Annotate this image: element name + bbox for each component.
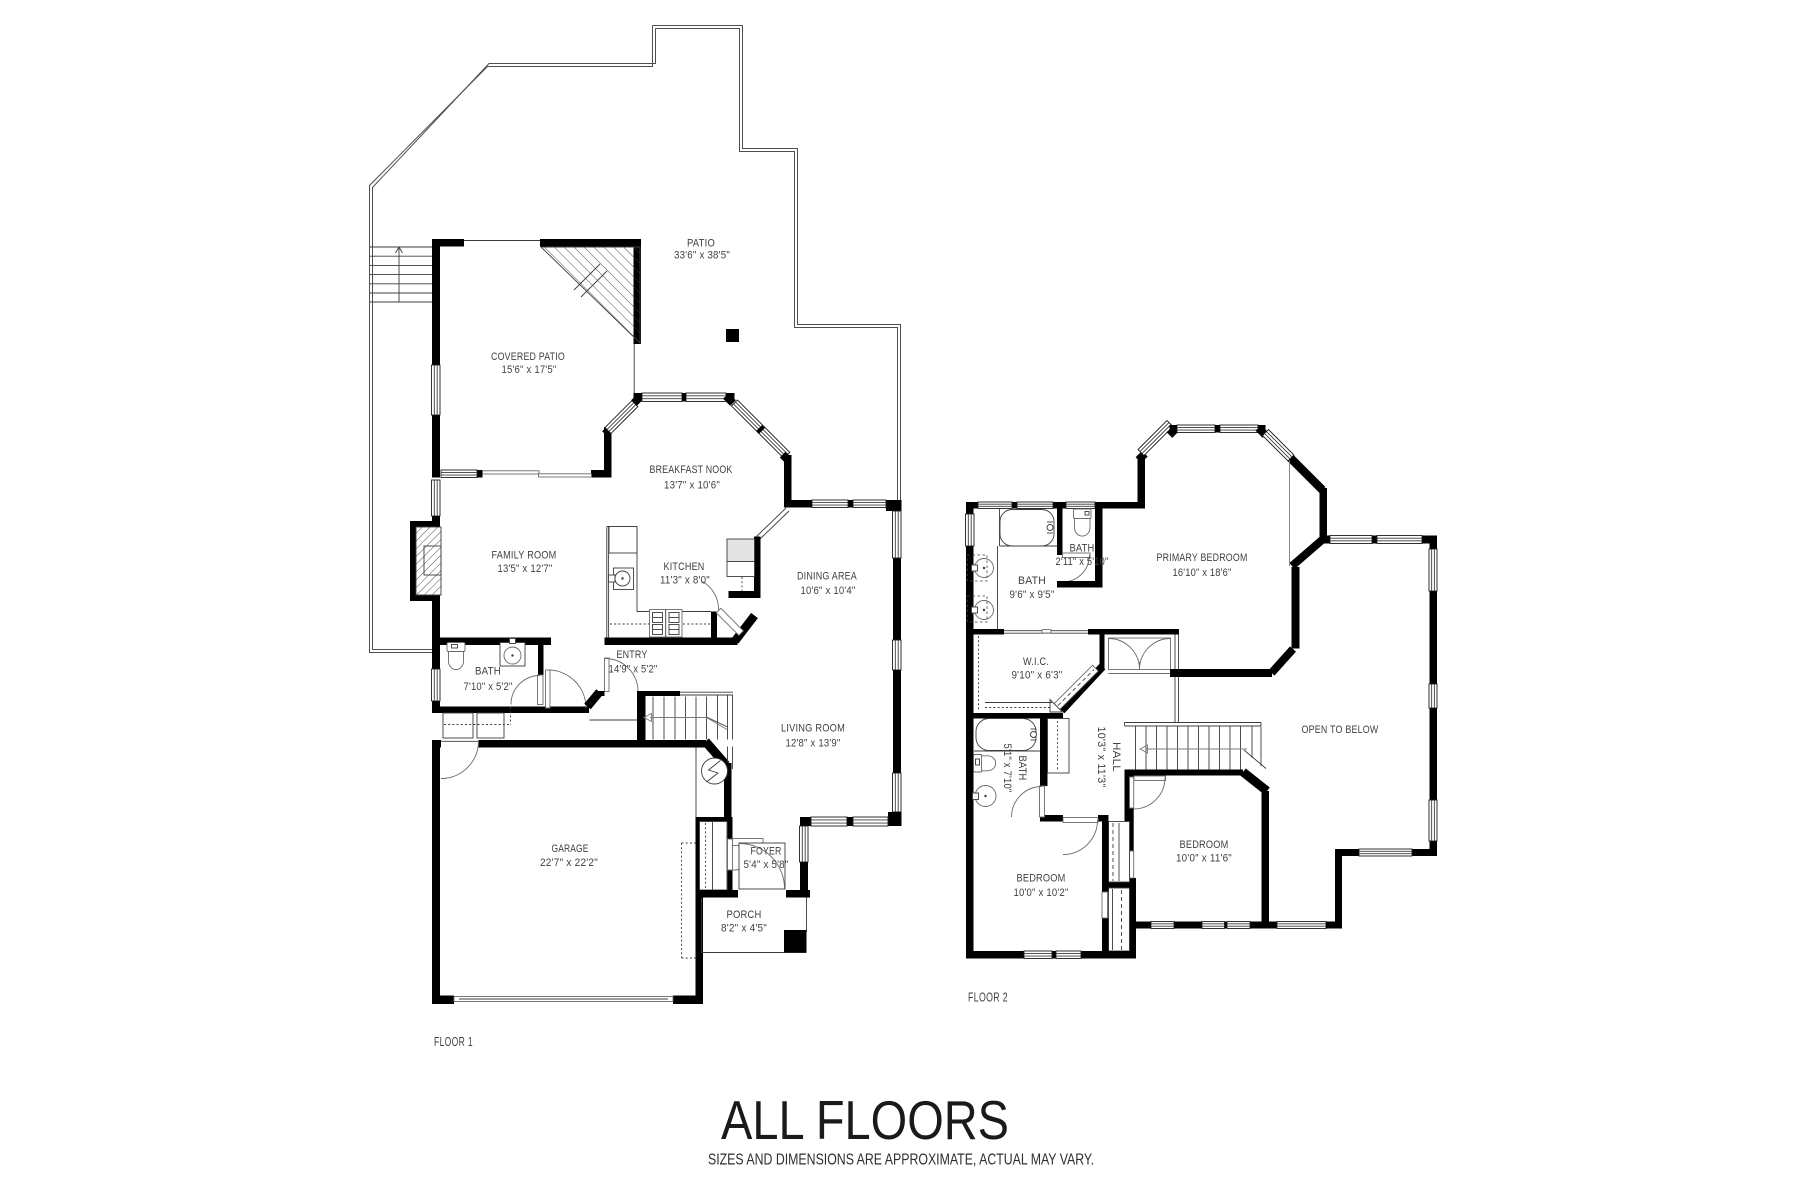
svg-text:2'11" x 5'10": 2'11" x 5'10": [1056, 556, 1109, 568]
svg-text:PORCH: PORCH: [727, 909, 762, 921]
svg-text:ENTRY: ENTRY: [617, 649, 648, 661]
svg-text:8'2" x 4'5": 8'2" x 4'5": [721, 923, 767, 935]
svg-text:ALL FLOORS: ALL FLOORS: [721, 1089, 1009, 1151]
svg-text:13'5" x 12'7": 13'5" x 12'7": [498, 563, 553, 575]
svg-text:9'6" x 9'5": 9'6" x 9'5": [1010, 589, 1055, 601]
svg-text:GARAGE: GARAGE: [552, 843, 589, 855]
svg-text:BATH: BATH: [475, 666, 501, 678]
svg-text:33'6" x 38'5": 33'6" x 38'5": [674, 250, 730, 262]
svg-text:BATH: BATH: [1016, 756, 1028, 781]
svg-text:PRIMARY BEDROOM: PRIMARY BEDROOM: [1157, 552, 1248, 564]
svg-text:FLOOR 1: FLOOR 1: [434, 1035, 473, 1049]
svg-text:BREAKFAST NOOK: BREAKFAST NOOK: [650, 464, 733, 476]
svg-text:12'8" x 13'9": 12'8" x 13'9": [786, 738, 841, 750]
svg-text:DINING AREA: DINING AREA: [797, 571, 857, 583]
svg-text:LIVING ROOM: LIVING ROOM: [781, 723, 845, 735]
svg-text:11'3" x 8'0": 11'3" x 8'0": [660, 575, 710, 587]
svg-text:BATH: BATH: [1070, 543, 1095, 555]
svg-text:SIZES AND DIMENSIONS ARE APPRO: SIZES AND DIMENSIONS ARE APPROXIMATE, AC…: [708, 1152, 1094, 1169]
svg-text:10'0" x 11'6": 10'0" x 11'6": [1176, 853, 1232, 865]
svg-text:BEDROOM: BEDROOM: [1017, 873, 1066, 885]
svg-text:15'6" x 17'5": 15'6" x 17'5": [502, 364, 557, 376]
svg-text:5'4" x 5'8": 5'4" x 5'8": [744, 859, 789, 871]
svg-text:HALL: HALL: [1110, 742, 1122, 772]
svg-text:9'10" x 6'3": 9'10" x 6'3": [1012, 670, 1063, 682]
svg-text:13'7" x 10'6": 13'7" x 10'6": [664, 480, 720, 492]
svg-text:KITCHEN: KITCHEN: [664, 561, 705, 573]
svg-text:FOYER: FOYER: [751, 846, 782, 858]
svg-text:22'7" x 22'2": 22'7" x 22'2": [540, 857, 598, 869]
svg-text:5'1" x 7'10": 5'1" x 7'10": [1001, 744, 1013, 793]
svg-text:10'0" x 10'2": 10'0" x 10'2": [1014, 887, 1069, 899]
svg-text:PATIO: PATIO: [687, 238, 715, 250]
svg-text:FLOOR 2: FLOOR 2: [968, 991, 1008, 1005]
svg-text:16'10" x 18'6": 16'10" x 18'6": [1173, 567, 1232, 579]
svg-text:W.I.C.: W.I.C.: [1023, 656, 1049, 668]
svg-text:OPEN TO BELOW: OPEN TO BELOW: [1302, 724, 1379, 736]
svg-text:10'6" x 10'4": 10'6" x 10'4": [801, 585, 856, 597]
svg-text:7'10" x 5'2": 7'10" x 5'2": [464, 681, 513, 693]
svg-text:COVERED PATIO: COVERED PATIO: [491, 351, 565, 363]
svg-text:FAMILY ROOM: FAMILY ROOM: [492, 550, 557, 562]
svg-text:10'3" x 11'3": 10'3" x 11'3": [1095, 727, 1107, 788]
svg-text:BEDROOM: BEDROOM: [1180, 839, 1229, 851]
svg-text:BATH: BATH: [1018, 575, 1046, 587]
svg-text:14'9" x 5'2": 14'9" x 5'2": [609, 664, 658, 676]
